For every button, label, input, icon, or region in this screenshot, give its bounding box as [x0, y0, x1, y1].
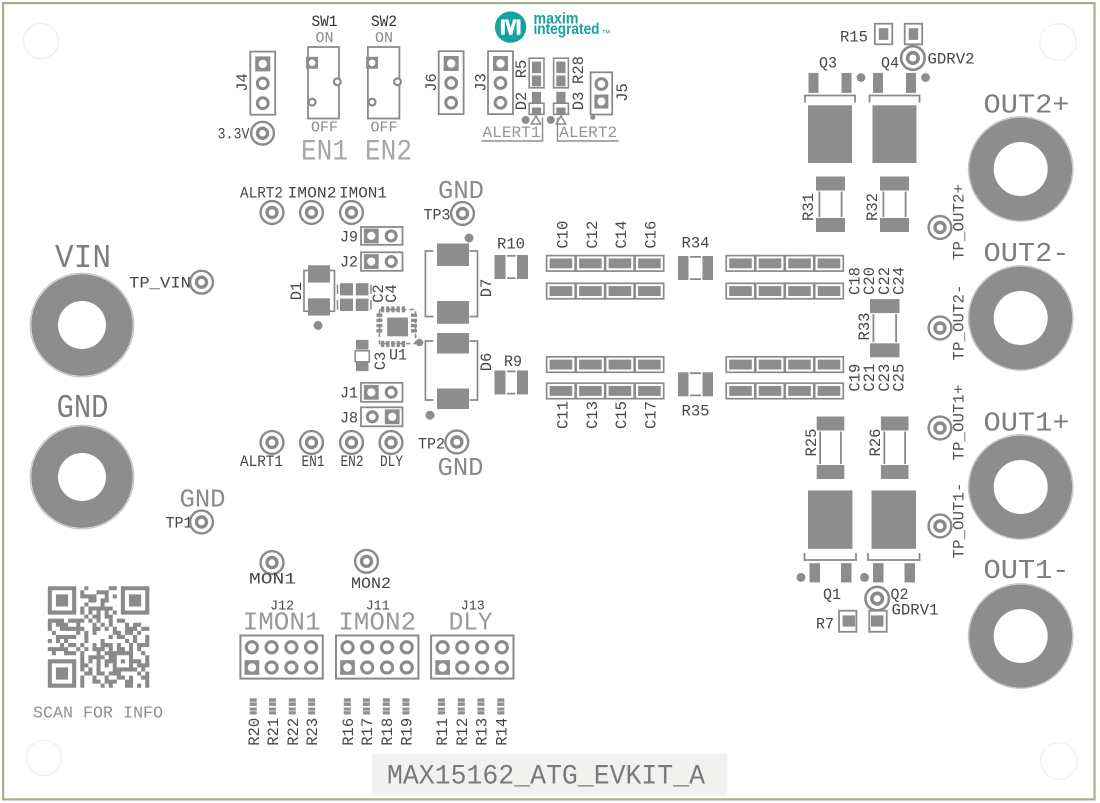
svg-text:R9: R9	[504, 353, 522, 371]
svg-text:R17: R17	[359, 718, 377, 746]
svg-text:R32: R32	[864, 193, 882, 221]
svg-text:ALERT1: ALERT1	[483, 124, 541, 142]
svg-text:EN1: EN1	[301, 136, 348, 170]
svg-text:R33: R33	[856, 313, 874, 341]
svg-text:C24: C24	[890, 267, 908, 295]
svg-text:J2: J2	[340, 254, 358, 272]
svg-text:R22: R22	[285, 718, 303, 746]
svg-text:D6: D6	[478, 353, 496, 372]
svg-text:DLY: DLY	[449, 608, 493, 638]
svg-text:C10: C10	[555, 221, 573, 249]
svg-text:J9: J9	[340, 229, 358, 247]
svg-text:R20: R20	[246, 718, 264, 746]
svg-text:TP_OUT1-: TP_OUT1-	[951, 483, 969, 559]
svg-text:R7: R7	[816, 616, 834, 634]
svg-text:3.3V: 3.3V	[218, 126, 251, 144]
svg-text:Q1: Q1	[823, 586, 841, 604]
svg-text:SW2: SW2	[371, 13, 397, 31]
svg-text:OUT1-: OUT1-	[984, 557, 1070, 587]
svg-text:R23: R23	[304, 718, 322, 746]
svg-text:D2: D2	[513, 92, 531, 111]
svg-text:SW1: SW1	[312, 13, 338, 31]
svg-text:™: ™	[602, 28, 611, 38]
svg-text:IMON1: IMON1	[243, 608, 321, 638]
svg-text:TP_OUT2+: TP_OUT2+	[951, 184, 969, 260]
svg-text:TP_OUT1+: TP_OUT1+	[951, 385, 969, 461]
svg-text:R28: R28	[570, 56, 588, 84]
svg-text:R19: R19	[398, 718, 416, 746]
svg-text:ALERT2: ALERT2	[559, 124, 617, 142]
svg-text:IMON2: IMON2	[338, 608, 416, 638]
svg-text:MON2: MON2	[351, 575, 391, 593]
svg-text:TP_VIN: TP_VIN	[129, 275, 191, 293]
svg-text:IMON1: IMON1	[339, 185, 387, 203]
svg-text:SCAN FOR INFO: SCAN FOR INFO	[33, 704, 163, 723]
svg-text:D7: D7	[478, 279, 496, 298]
svg-text:R18: R18	[379, 718, 397, 746]
svg-text:R26: R26	[867, 429, 885, 457]
svg-text:ALRT2: ALRT2	[240, 185, 283, 203]
svg-text:ALRT1: ALRT1	[240, 453, 283, 471]
svg-text:GND: GND	[57, 390, 109, 427]
svg-text:R12: R12	[454, 718, 472, 746]
svg-text:C17: C17	[642, 401, 660, 429]
svg-text:TP_OUT2-: TP_OUT2-	[951, 285, 969, 361]
svg-text:C3: C3	[372, 352, 390, 371]
svg-text:C14: C14	[613, 221, 631, 249]
svg-text:R34: R34	[682, 235, 710, 253]
svg-text:TP2: TP2	[418, 436, 445, 454]
svg-text:Q4: Q4	[881, 55, 899, 73]
svg-text:R5: R5	[513, 60, 531, 79]
svg-text:VIN: VIN	[55, 240, 111, 277]
svg-text:R10: R10	[497, 236, 525, 254]
svg-text:DLY: DLY	[380, 453, 404, 471]
svg-text:EN2: EN2	[341, 453, 364, 471]
svg-text:EN1: EN1	[302, 453, 325, 471]
svg-text:R11: R11	[434, 718, 452, 746]
svg-text:MON1: MON1	[249, 571, 296, 589]
svg-text:R13: R13	[473, 718, 491, 746]
svg-text:R16: R16	[340, 718, 358, 746]
svg-text:OFF: OFF	[371, 120, 398, 137]
svg-text:J5: J5	[614, 83, 632, 102]
svg-text:R14: R14	[493, 718, 511, 746]
svg-text:C25: C25	[890, 364, 908, 392]
svg-text:ON: ON	[316, 30, 334, 47]
svg-text:C16: C16	[642, 221, 660, 249]
svg-text:integrated: integrated	[534, 21, 600, 38]
svg-text:Q3: Q3	[819, 55, 837, 73]
svg-text:R31: R31	[800, 193, 818, 221]
svg-text:EN2: EN2	[365, 136, 412, 170]
svg-text:R15: R15	[840, 29, 868, 47]
svg-text:D3: D3	[570, 92, 588, 111]
svg-text:C11: C11	[555, 401, 573, 429]
svg-text:TP1: TP1	[166, 515, 193, 533]
svg-text:U1: U1	[389, 347, 407, 365]
svg-text:C15: C15	[613, 401, 631, 429]
svg-text:R25: R25	[803, 429, 821, 457]
svg-text:GDRV1: GDRV1	[892, 602, 939, 620]
svg-text:IMON2: IMON2	[288, 185, 337, 203]
svg-text:C13: C13	[584, 401, 602, 429]
svg-text:GND: GND	[438, 453, 484, 483]
svg-text:J4: J4	[234, 73, 252, 92]
svg-text:MAX15162_ATG_EVKIT_A: MAX15162_ATG_EVKIT_A	[387, 762, 705, 793]
svg-text:ON: ON	[375, 30, 393, 47]
svg-text:R35: R35	[682, 403, 710, 421]
svg-text:OFF: OFF	[311, 120, 338, 137]
svg-text:C4: C4	[383, 284, 401, 303]
svg-text:GDRV2: GDRV2	[928, 51, 975, 69]
svg-text:R21: R21	[265, 718, 283, 746]
svg-text:C12: C12	[584, 221, 602, 249]
svg-text:J8: J8	[340, 410, 358, 428]
svg-text:TP3: TP3	[424, 207, 451, 225]
svg-text:J1: J1	[340, 385, 358, 403]
